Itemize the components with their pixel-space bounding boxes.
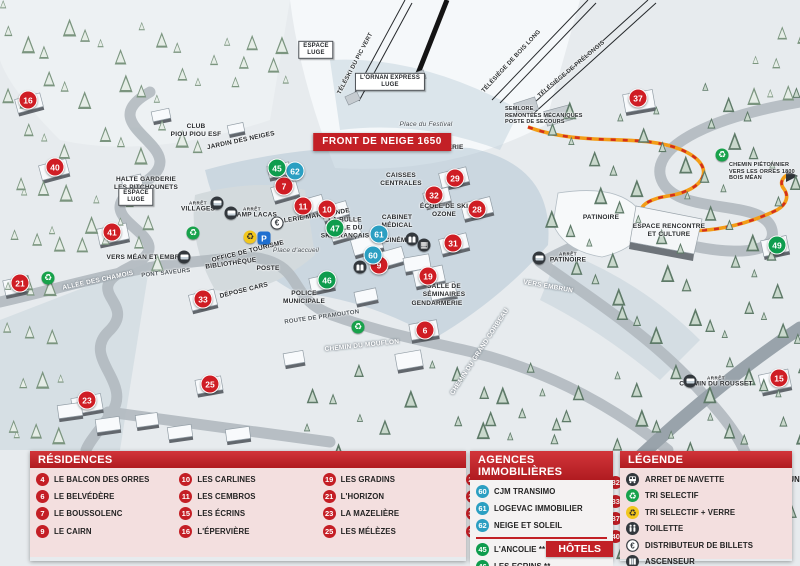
number-badge: 9 [36,525,49,538]
agency-name: NEIGE ET SOLEIL [494,521,562,530]
agency-name: CJM TRANSIMO [494,487,555,496]
recycle-glass-icon: ♻ [626,506,639,519]
map-marker-6[interactable]: 6 [416,321,435,340]
svg-text:♻: ♻ [628,491,636,501]
map-label: ÉCOLE DE SKIOZONE [420,203,468,219]
number-badge: 11 [179,490,192,503]
map-label: GENDARMERIE [412,300,463,308]
recycle-icon: ♻ [42,272,55,285]
map-label: ESPACE RENCONTREET CULTURE [633,223,705,239]
map-marker-62[interactable]: 62 [286,162,305,181]
map-marker-33[interactable]: 33 [194,290,213,309]
residence-list-item[interactable]: 21 L'HORIZON [323,490,460,503]
legend-item-atm: € DISTRIBUTEUR DE BILLETS [626,539,786,552]
map-marker-61[interactable]: 61 [370,225,389,244]
legend-label: TRI SELECTIF + VERRE [645,508,735,517]
number-badge: 46 [476,560,489,566]
number-badge: 7 [36,507,49,520]
residence-name: L'ÉPERVIÈRE [197,527,249,536]
recycle-glass-icon: ♻ [244,231,257,244]
residence-name: LA MAZELIÈRE [341,509,400,518]
legend-item-recycling: ♻ TRI SELECTIF [626,489,786,502]
bus-icon [533,252,546,265]
agency-list-item[interactable]: 62 NEIGE ET SOLEIL [476,519,607,532]
map-marker-19[interactable]: 19 [419,267,438,286]
agencies-panel: AGENCES IMMOBILIÈRES 60 CJM TRANSIMO 61 … [470,451,613,561]
bus-icon [684,375,697,388]
map-marker-40[interactable]: 40 [46,158,65,177]
map-marker-60[interactable]: 60 [364,246,383,265]
recycle-icon: ♻ [352,321,365,334]
map-marker-45[interactable]: 45 [268,159,287,178]
map-label: POLICEMUNICIPALE [283,290,325,306]
hotel-name: LES ECRINS ** [494,562,550,566]
residence-list-item[interactable]: 25 LES MÉLÈZES [323,525,460,538]
legend-label: ARRET DE NAVETTE [645,475,724,484]
residence-name: LES ÉCRINS [197,509,245,518]
agency-name: LOGEVAC IMMOBILIER [494,504,583,513]
residence-list-item[interactable]: 19 LES GRADINS [323,473,460,486]
number-badge: 23 [323,507,336,520]
number-badge: 60 [476,485,489,498]
map-marker-21[interactable]: 21 [11,274,30,293]
residence-name: LE CAIRN [54,527,92,536]
map-label: CLUBPIOU PIOU ESF [171,123,222,139]
resort-map: ♻♻♻♻♻P€▦ FRONT DE NEIGE 1650L'ORNAN EXPR… [0,0,800,566]
residences-list: 4 LE BALCON DES ORRES 6 LE BELVÉDÈRE 7 L… [30,468,466,557]
map-marker-25[interactable]: 25 [201,375,220,394]
number-badge: 61 [476,502,489,515]
residence-list-item[interactable]: 10 LES CARLINES [179,473,316,486]
svg-text:€: € [630,541,635,550]
map-marker-41[interactable]: 41 [103,223,122,242]
map-label: FRONT DE NEIGE 1650 [313,133,451,151]
toilet-icon [626,522,639,535]
map-label: L'ORNAN EXPRESSLUGE [355,73,425,91]
legend-item-elevator: ASCENSEUR [626,555,786,566]
shuttle-bus-icon [626,473,639,486]
residence-name: L'HORIZON [341,492,384,501]
residence-list-item[interactable]: 6 LE BELVÉDÈRE [36,490,173,503]
map-label: ESPACELUGE [298,41,333,59]
bus-icon [225,207,238,220]
elevator-icon [626,555,639,566]
divider [476,537,607,539]
map-label: SALLE DESÉMINAIRES [423,283,465,299]
map-marker-28[interactable]: 28 [468,200,487,219]
number-badge: 25 [323,525,336,538]
residence-list-item[interactable]: 7 LE BOUSSOLENC [36,507,173,520]
bus-icon [178,251,191,264]
hotel-name: L'ANCOLIE ** [494,545,545,554]
recycle-icon: ♻ [187,227,200,240]
map-marker-15[interactable]: 15 [770,369,789,388]
agencies-list: 60 CJM TRANSIMO 61 LOGEVAC IMMOBILIER 62… [476,485,607,532]
number-badge: 62 [476,519,489,532]
atm-euro-icon: € [626,539,639,552]
residence-name: LES GRADINS [341,475,395,484]
map-marker-10[interactable]: 10 [318,200,337,219]
residence-name: LE BOUSSOLENC [54,509,122,518]
legend-item-shuttle: ARRET DE NAVETTE [626,473,786,486]
legend-item-toilet: TOILETTE [626,522,786,535]
legend-label: TOILETTE [645,524,683,533]
map-label: Place d'accueil [273,247,319,255]
map-marker-31[interactable]: 31 [444,234,463,253]
elevator-icon: ▦ [418,239,431,252]
agency-list-item[interactable]: 61 LOGEVAC IMMOBILIER [476,502,607,515]
bus-icon [211,197,224,210]
number-badge: 45 [476,543,489,556]
map-marker-32[interactable]: 32 [425,186,444,205]
residence-list-item[interactable]: 9 LE CAIRN [36,525,173,538]
residence-list-item[interactable]: 15 LES ÉCRINS [179,507,316,520]
residence-name: LES CARLINES [197,475,255,484]
number-badge: 16 [179,525,192,538]
map-marker-49[interactable]: 49 [768,236,787,255]
number-badge: 19 [323,473,336,486]
toilet-icon [354,261,367,274]
map-label: ESPACELUGE [118,188,153,206]
hotel-list-item[interactable]: 46 LES ECRINS ** [476,560,607,566]
legend-title: LÉGENDE [620,451,792,468]
recycle-icon: ♻ [626,489,639,502]
residence-list-item[interactable]: 23 LA MAZELIÈRE [323,507,460,520]
number-badge: 15 [179,507,192,520]
map-label: Place du Festival [400,121,453,129]
legend-label: DISTRIBUTEUR DE BILLETS [645,541,753,550]
residence-list-item[interactable]: 4 LE BALCON DES ORRES [36,473,173,486]
number-badge: 21 [323,490,336,503]
residence-list-item[interactable]: 11 LES CEMBROS [179,490,316,503]
agencies-title: AGENCES IMMOBILIÈRES [470,451,613,480]
residence-name: LE BALCON DES ORRES [54,475,149,484]
map-marker-23[interactable]: 23 [78,391,97,410]
map-label: PATINOIRE [583,214,619,222]
map-label: ARRÊTPATINOIRE [550,251,586,264]
map-marker-29[interactable]: 29 [446,169,465,188]
residence-name: LE BELVÉDÈRE [54,492,114,501]
residences-title: RÉSIDENCES [30,451,466,468]
legend-item-recycling-glass: ♻ TRI SELECTIF + VERRE [626,506,786,519]
number-badge: 6 [36,490,49,503]
svg-text:♻: ♻ [628,508,636,518]
map-label: SEMLOREREMONTÉES MÉCANIQUESPOSTE DE SECO… [505,106,583,126]
legend-label: TRI SELECTIF [645,491,699,500]
map-marker-46[interactable]: 46 [318,271,337,290]
residences-panel: RÉSIDENCES 4 LE BALCON DES ORRES 6 LE BE… [30,451,466,561]
number-badge: 10 [179,473,192,486]
map-label: CAISSESCENTRALES [380,172,422,188]
recycle-icon: ♻ [716,149,729,162]
legend-label: ASCENSEUR [645,557,695,566]
hotels-title: HÔTELS [546,541,613,557]
map-marker-37[interactable]: 37 [629,89,648,108]
atm-euro-icon: € [271,217,284,230]
map-marker-16[interactable]: 16 [19,91,38,110]
agency-list-item[interactable]: 60 CJM TRANSIMO [476,485,607,498]
map-label: POSTE [256,265,279,273]
residence-name: LES CEMBROS [197,492,255,501]
legend-panel: LÉGENDE ARRET DE NAVETTE ♻ TRI SELECTIF … [620,451,792,561]
parking-icon: P [258,232,271,245]
map-label: CHEMIN PIÉTONNIERVERS LES ORRES 1800BOIS… [729,162,795,182]
number-badge: 4 [36,473,49,486]
residence-list-item[interactable]: 16 L'ÉPERVIÈRE [179,525,316,538]
map-marker-11[interactable]: 11 [294,197,313,216]
residence-name: LES MÉLÈZES [341,527,396,536]
map-marker-47[interactable]: 47 [326,219,345,238]
